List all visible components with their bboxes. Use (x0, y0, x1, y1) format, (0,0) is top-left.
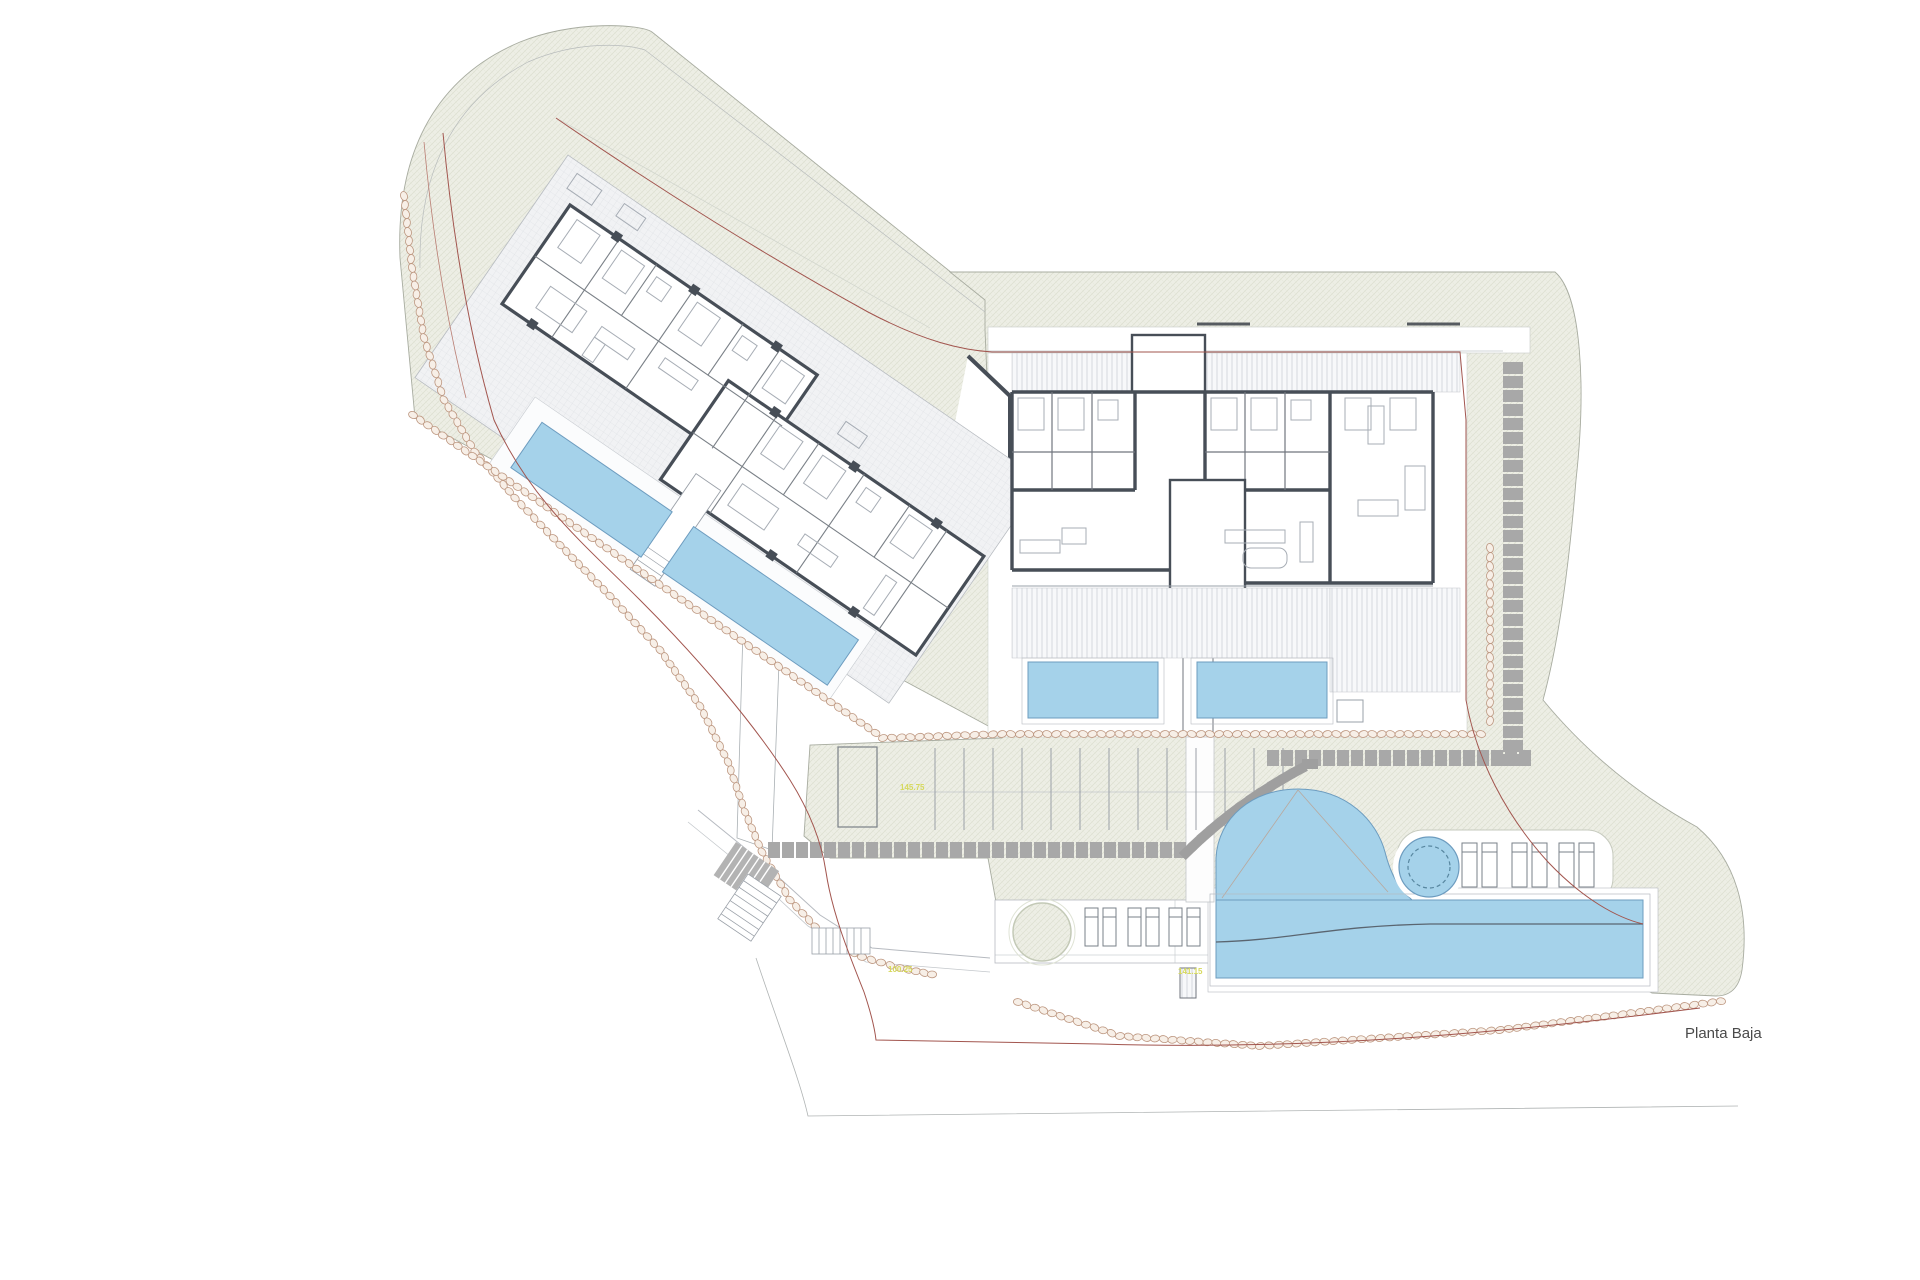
elevation-label-1: 145.75 (900, 783, 925, 792)
deck-planter-box (1337, 700, 1363, 722)
communal-pool-main (1216, 900, 1643, 978)
site-plan-drawing: 145.75 100.25 141.15 Planta Baja (0, 0, 1920, 1280)
floor-plan-canvas: 145.75 100.25 141.15 Planta Baja (0, 0, 1920, 1280)
right-building-pool-b (1197, 662, 1327, 718)
right-building-lower-terrace (1012, 588, 1330, 658)
elevation-label-2: 100.25 (888, 965, 913, 974)
right-building-side-terrace (1330, 588, 1460, 692)
elevation-label-3: 141.15 (1178, 967, 1203, 976)
right-building-upper-terrace (1012, 353, 1460, 392)
plan-title: Planta Baja (1685, 1025, 1762, 1042)
right-building-top-band (988, 327, 1530, 353)
planter-circle (1009, 899, 1075, 965)
right-building-pool-a (1028, 662, 1158, 718)
garden-corridor (1186, 737, 1214, 902)
